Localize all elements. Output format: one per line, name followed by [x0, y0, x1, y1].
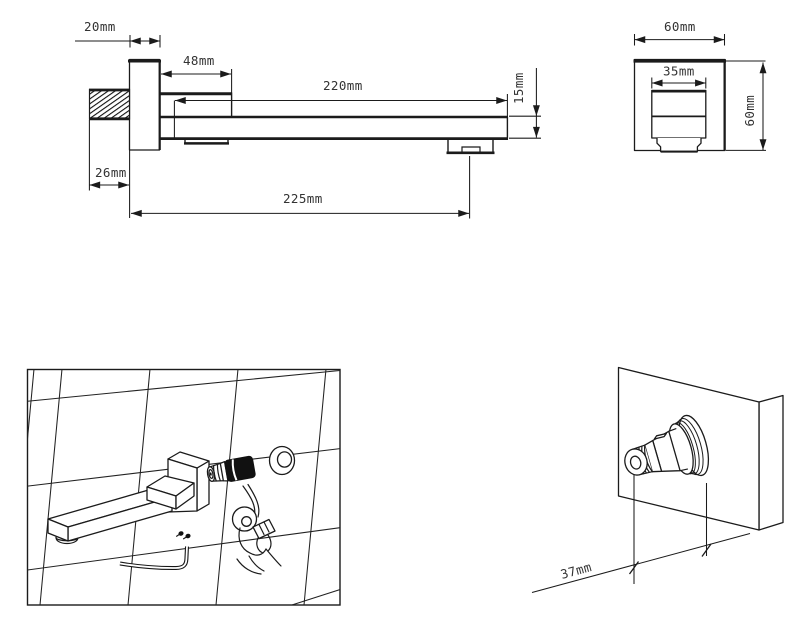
installation-view: [12, 369, 345, 619]
dim-plate-depth: 20mm: [75, 19, 160, 48]
wall-spout-3d: [48, 452, 209, 544]
dim-step-length: 48mm: [161, 53, 232, 93]
valve-spout-outlet: [651, 91, 706, 152]
dim-label-spout-thickness: 15mm: [511, 72, 526, 104]
spout-side-view: 20mm 48mm 220mm 15mm 26mm: [75, 19, 541, 219]
dim-label-step-length: 48mm: [183, 53, 215, 68]
valve-cartridge: [206, 456, 256, 485]
dim-label-body-height: 60mm: [742, 95, 757, 127]
valve-3d-view: 37mm: [532, 368, 783, 593]
wall-plate: [128, 60, 161, 151]
dim-label-stem-protrusion: 37mm: [559, 559, 594, 582]
mounting-screws: [177, 531, 192, 539]
dim-body-width: 60mm: [635, 19, 725, 46]
dim-label-spout-length: 220mm: [323, 78, 363, 93]
dim-overall-reach: 225mm: [131, 156, 470, 219]
threaded-inlet: [89, 90, 130, 120]
dim-spout-length: 220mm: [174, 78, 507, 138]
dim-label-thread-length: 26mm: [95, 165, 127, 180]
dim-label-overall-reach: 225mm: [283, 191, 323, 206]
dim-label-spout-width: 35mm: [663, 64, 695, 79]
dim-label-plate-depth: 20mm: [84, 19, 116, 34]
dim-body-height: 60mm: [742, 63, 763, 151]
escutcheon-ring: [270, 447, 295, 475]
technical-drawing-canvas: 20mm 48mm 220mm 15mm 26mm: [0, 0, 808, 619]
page: 20mm 48mm 220mm 15mm 26mm: [0, 0, 808, 619]
hand-with-washer: [233, 507, 282, 574]
dim-spout-thickness: 15mm: [509, 68, 541, 138]
valve-front-view: 60mm 35mm 60mm: [634, 19, 767, 152]
aerator-nozzle: [447, 139, 495, 153]
dim-label-body-width: 60mm: [664, 19, 696, 34]
dim-thread-length: 26mm: [89, 120, 129, 218]
